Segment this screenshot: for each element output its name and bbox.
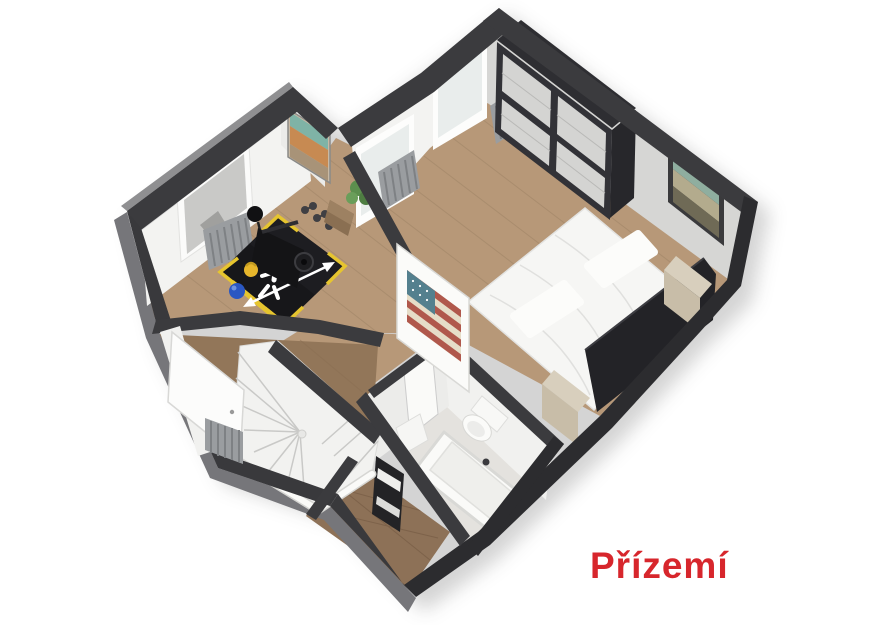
floorplan-screenshot: Přízemí bbox=[0, 0, 894, 625]
floor-label: Přízemí bbox=[590, 545, 729, 586]
ball-highlight bbox=[232, 286, 237, 291]
bathtub-faucet bbox=[483, 459, 490, 466]
exercise-ball-blue bbox=[229, 283, 245, 299]
door-handle bbox=[230, 410, 234, 414]
stairs-newel-post bbox=[298, 430, 306, 438]
floorplan-3d-render: Přízemí bbox=[0, 0, 894, 625]
